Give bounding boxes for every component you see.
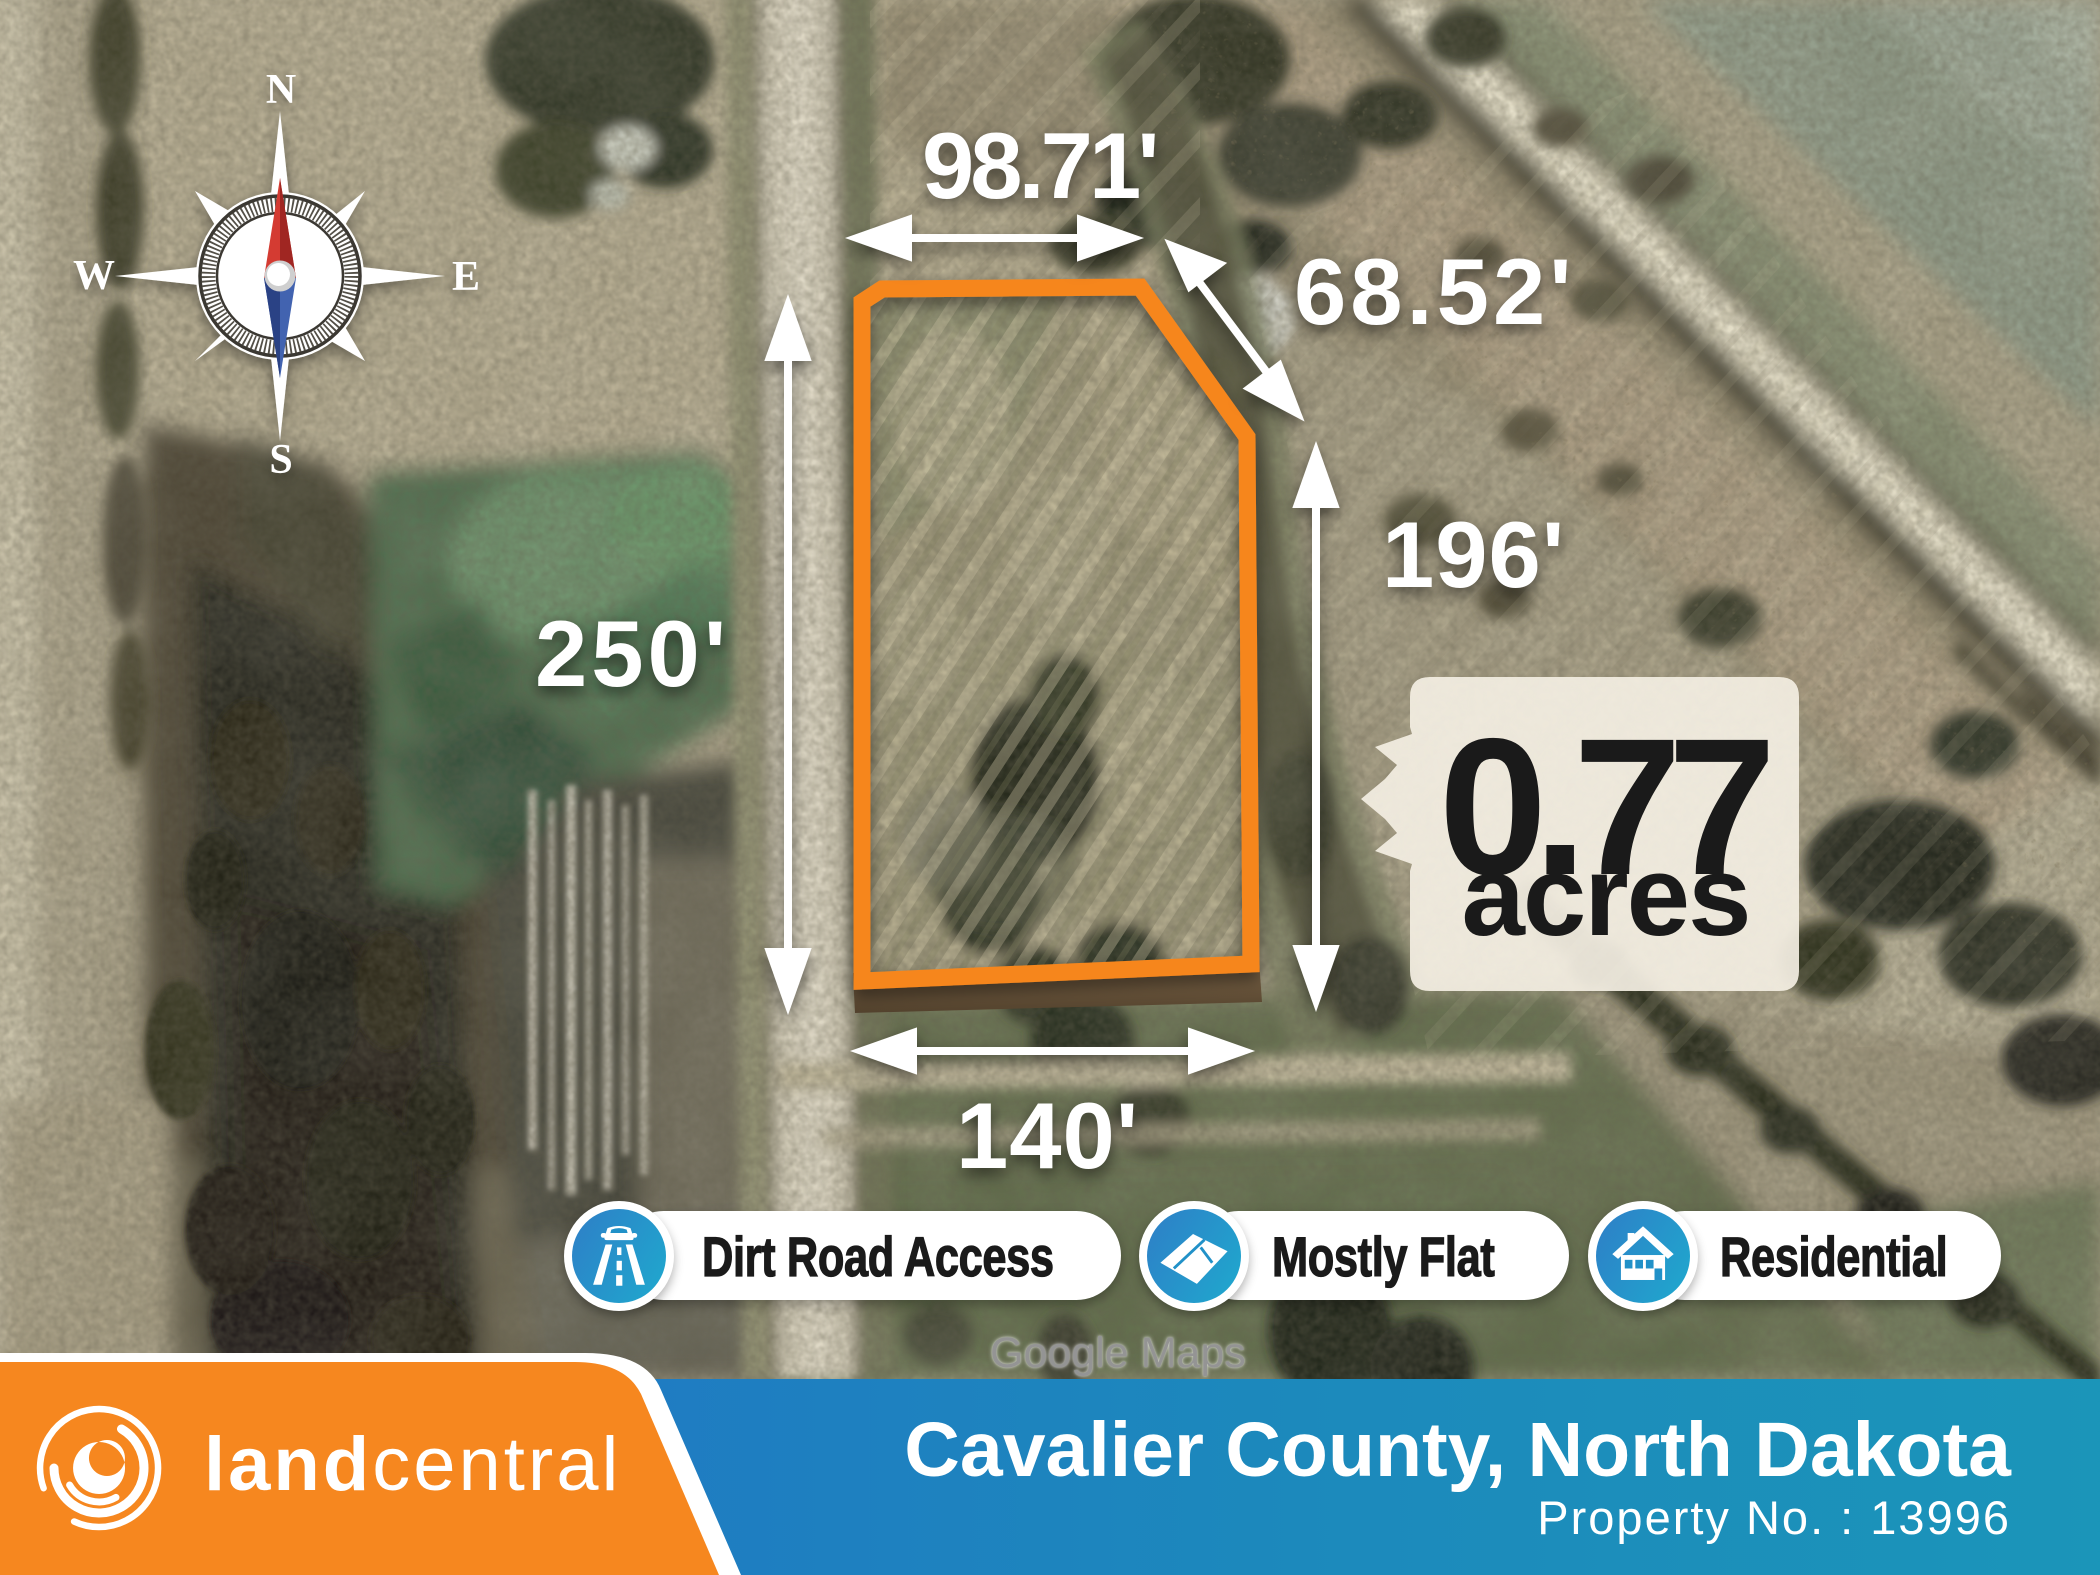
svg-text:S: S (269, 437, 292, 483)
svg-text:E: E (452, 254, 480, 300)
svg-text:N: N (266, 67, 296, 113)
svg-text:W: W (73, 253, 115, 299)
